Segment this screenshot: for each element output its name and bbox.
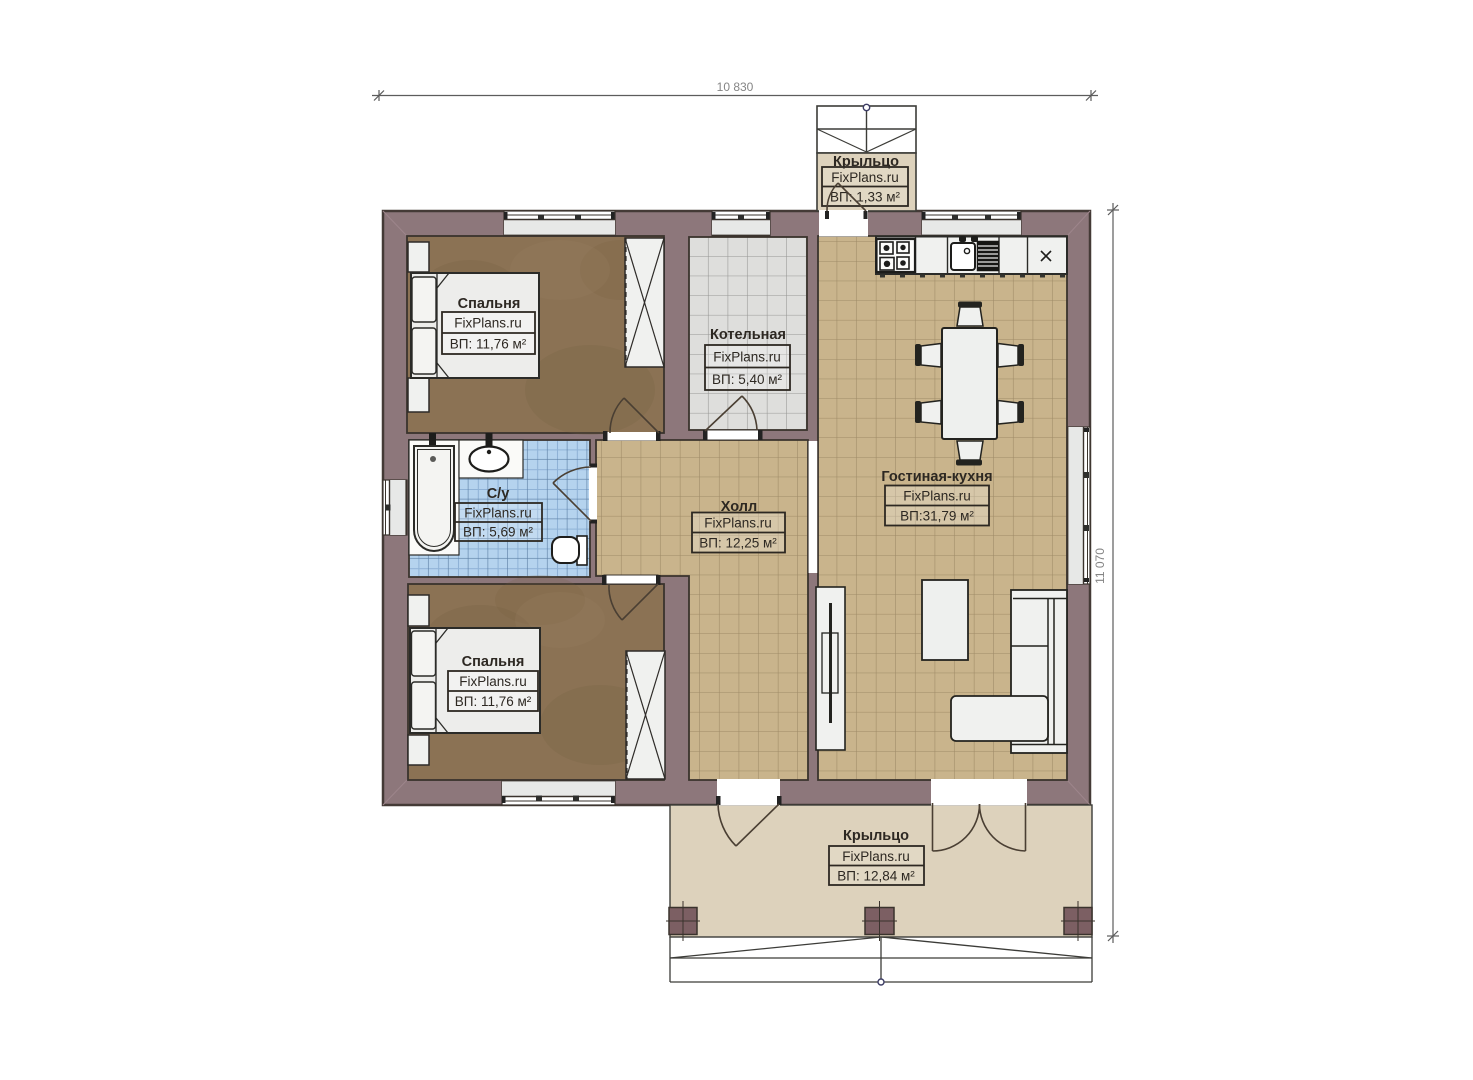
svg-text:ВП: 5,69 м²: ВП: 5,69 м² [463, 525, 534, 540]
svg-text:ВП: 12,84 м²: ВП: 12,84 м² [837, 869, 915, 884]
svg-text:ВП: 11,76 м²: ВП: 11,76 м² [450, 337, 527, 352]
svg-text:11 070: 11 070 [1093, 548, 1107, 584]
svg-text:С/у: С/у [487, 486, 510, 502]
svg-text:Спальня: Спальня [462, 654, 525, 670]
svg-text:FixPlans.ru: FixPlans.ru [831, 170, 899, 185]
svg-text:FixPlans.ru: FixPlans.ru [704, 516, 772, 531]
svg-text:FixPlans.ru: FixPlans.ru [903, 489, 971, 504]
svg-text:10 830: 10 830 [717, 80, 754, 94]
svg-text:Котельная: Котельная [710, 327, 786, 343]
svg-text:ВП: 11,76 м²: ВП: 11,76 м² [455, 694, 532, 709]
svg-text:ВП: 12,25 м²: ВП: 12,25 м² [699, 536, 777, 551]
svg-text:Крыльцо: Крыльцо [843, 828, 909, 844]
svg-text:Гостиная-кухня: Гостиная-кухня [881, 469, 992, 485]
svg-text:Спальня: Спальня [458, 296, 521, 312]
svg-text:FixPlans.ru: FixPlans.ru [713, 350, 781, 365]
svg-text:FixPlans.ru: FixPlans.ru [459, 674, 527, 689]
svg-text:ВП: 5,40 м²: ВП: 5,40 м² [712, 372, 783, 387]
svg-text:ВП:31,79 м²: ВП:31,79 м² [900, 509, 974, 524]
svg-text:FixPlans.ru: FixPlans.ru [454, 316, 522, 331]
svg-text:FixPlans.ru: FixPlans.ru [464, 506, 532, 521]
svg-text:ВП: 1,33 м²: ВП: 1,33 м² [830, 190, 901, 205]
svg-text:FixPlans.ru: FixPlans.ru [842, 849, 910, 864]
